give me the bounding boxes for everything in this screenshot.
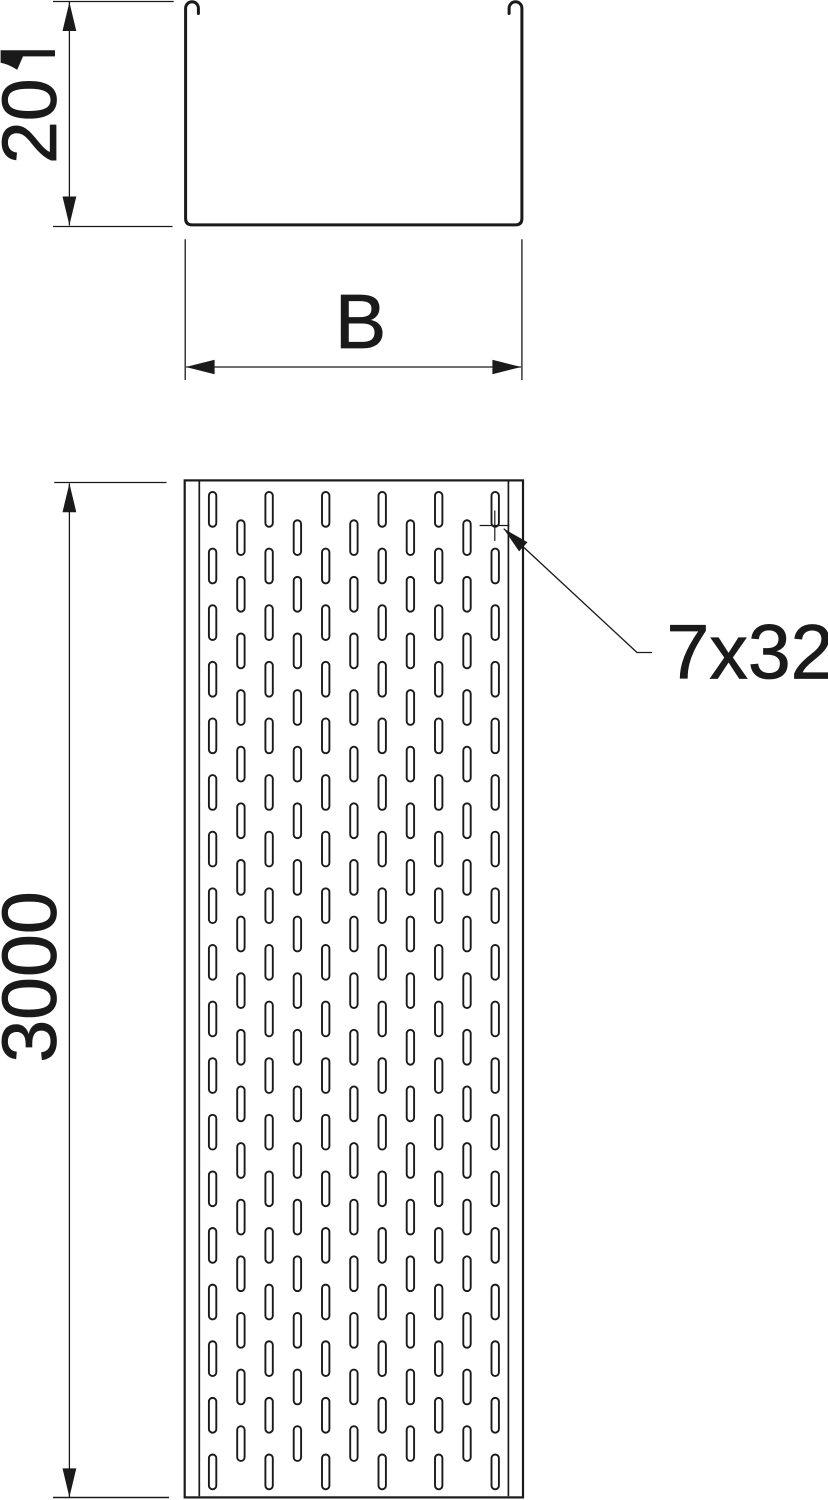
svg-text:7x32: 7x32 <box>667 610 828 696</box>
svg-text:2: 2 <box>0 121 73 164</box>
svg-text:B: B <box>335 279 386 365</box>
svg-text:0: 0 <box>0 78 73 121</box>
svg-text:3000: 3000 <box>0 891 73 1062</box>
